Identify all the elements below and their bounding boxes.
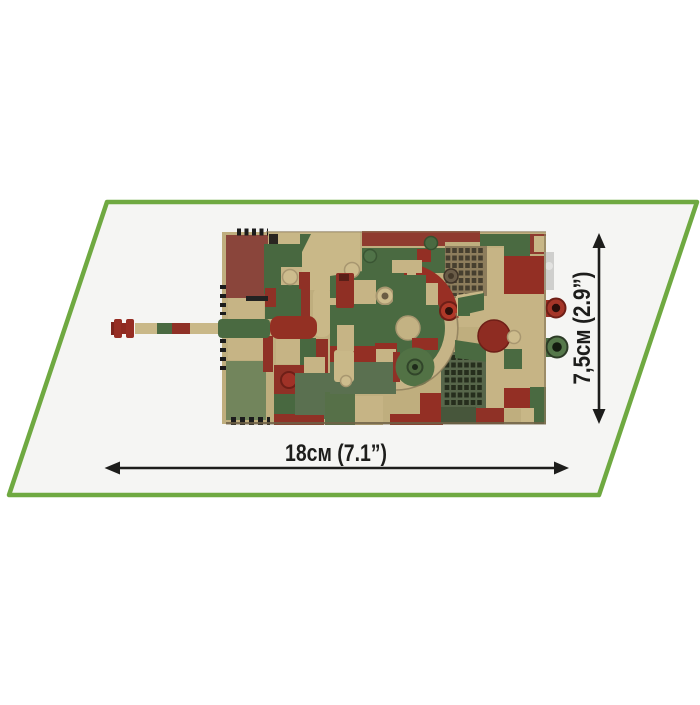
svg-text:18см (7.1”): 18см (7.1”) xyxy=(285,440,387,467)
svg-text:7,5см (2.9”): 7,5см (2.9”) xyxy=(569,272,596,385)
